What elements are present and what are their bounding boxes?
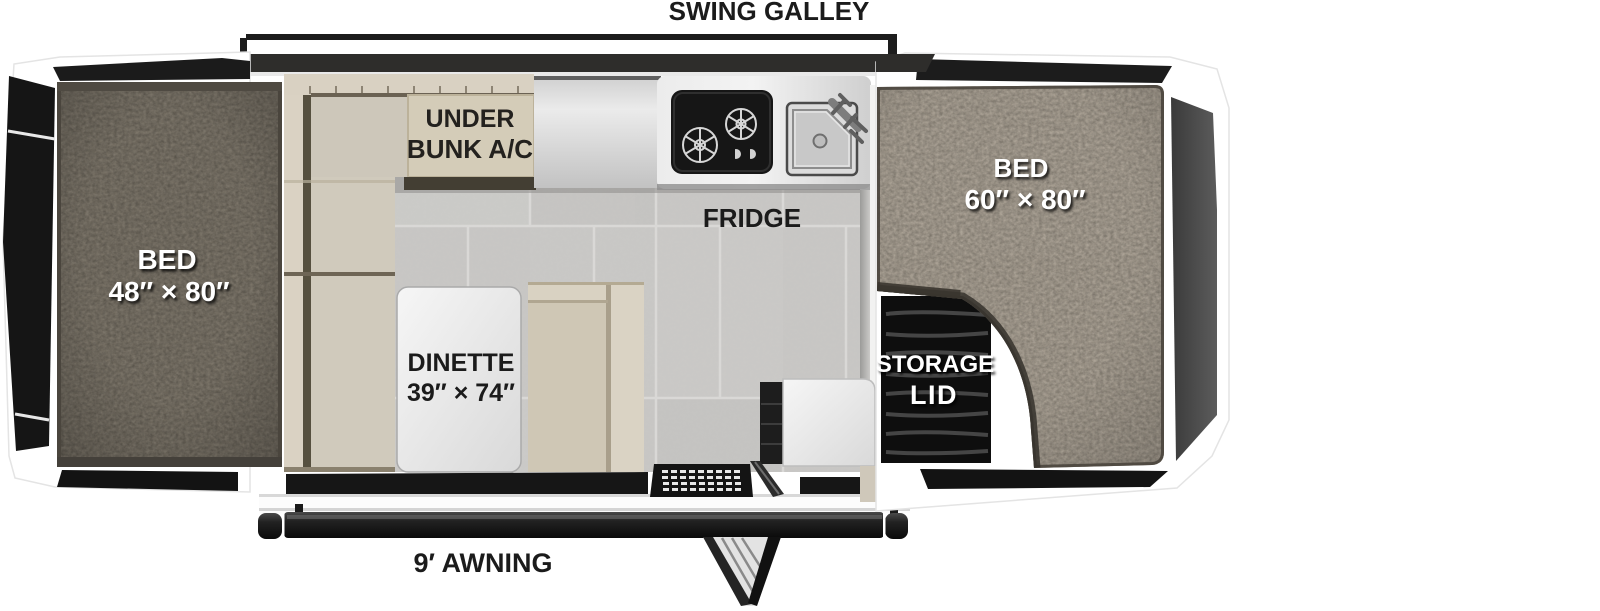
svg-text:9′ AWNING: 9′ AWNING: [414, 548, 553, 578]
svg-text:BUNK A/C: BUNK A/C: [407, 134, 533, 164]
svg-text:FRIDGE: FRIDGE: [703, 203, 801, 233]
svg-text:DINETTE: DINETTE: [408, 349, 515, 377]
svg-text:48″ × 80″: 48″ × 80″: [108, 276, 229, 307]
svg-text:39″ × 74″: 39″ × 74″: [407, 379, 515, 407]
svg-text:BED: BED: [994, 153, 1049, 183]
svg-text:STORAGE: STORAGE: [876, 351, 994, 378]
svg-text:LID: LID: [910, 380, 958, 410]
svg-text:SWING GALLEY: SWING GALLEY: [669, 0, 870, 26]
svg-text:60″ × 80″: 60″ × 80″: [964, 184, 1085, 215]
svg-text:UNDER: UNDER: [426, 105, 515, 133]
svg-text:BED: BED: [137, 244, 196, 275]
